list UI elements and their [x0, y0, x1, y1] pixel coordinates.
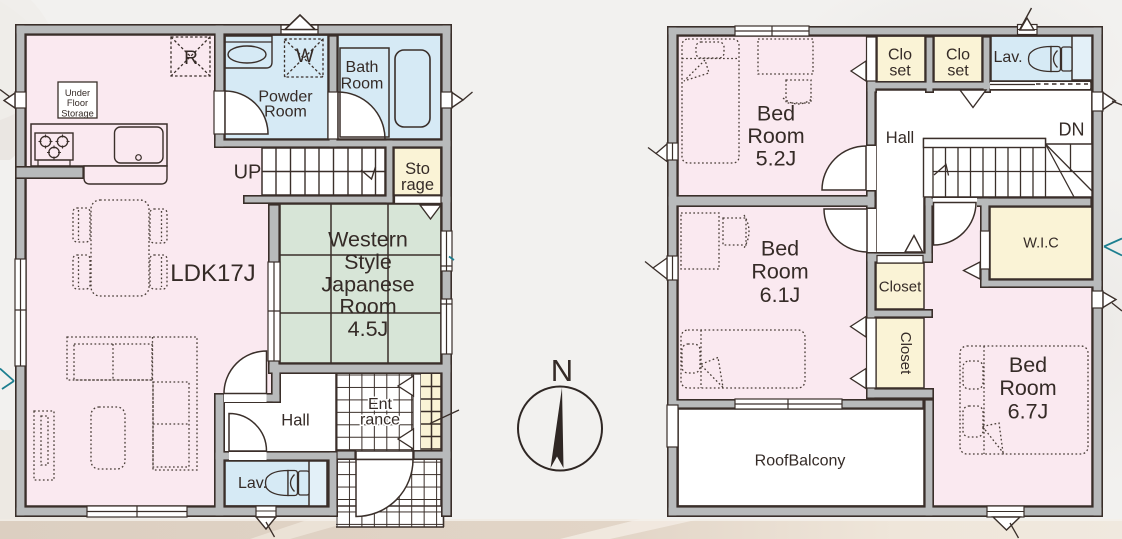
- svg-text:N: N: [551, 353, 573, 388]
- svg-text:Bath: Bath: [346, 59, 379, 76]
- svg-text:Floor: Floor: [67, 98, 88, 108]
- svg-text:LDK17J: LDK17J: [170, 260, 255, 287]
- svg-text:Hall: Hall: [281, 412, 309, 430]
- svg-text:R: R: [184, 48, 198, 69]
- svg-text:RoofBalcony: RoofBalcony: [755, 453, 846, 470]
- svg-text:6.7J: 6.7J: [1008, 399, 1049, 423]
- svg-text:Western: Western: [328, 228, 408, 252]
- svg-text:4.5J: 4.5J: [348, 317, 389, 341]
- svg-text:Closet: Closet: [879, 279, 922, 296]
- svg-text:Ent: Ent: [368, 396, 393, 413]
- svg-text:Hall: Hall: [886, 129, 914, 147]
- svg-text:Bed: Bed: [761, 237, 799, 261]
- svg-text:rance: rance: [360, 412, 400, 429]
- svg-text:Room: Room: [999, 376, 1056, 400]
- svg-text:W.I.C: W.I.C: [1023, 236, 1058, 252]
- svg-text:set: set: [889, 63, 911, 80]
- svg-text:Japanese: Japanese: [321, 272, 414, 296]
- svg-text:Room: Room: [339, 295, 396, 319]
- svg-text:Bed: Bed: [757, 102, 795, 126]
- svg-text:Lav.: Lav.: [993, 49, 1022, 66]
- svg-text:rage: rage: [401, 176, 434, 194]
- svg-text:Closet: Closet: [897, 332, 914, 375]
- svg-text:Clo: Clo: [888, 47, 912, 64]
- svg-text:UP: UP: [234, 162, 262, 184]
- svg-text:Clo: Clo: [946, 47, 970, 64]
- svg-text:W: W: [296, 46, 314, 67]
- svg-text:Room: Room: [747, 124, 804, 148]
- svg-text:Under: Under: [65, 88, 90, 98]
- svg-text:Lav.: Lav.: [238, 475, 267, 492]
- svg-text:Style: Style: [344, 250, 392, 274]
- svg-text:Room: Room: [751, 260, 808, 284]
- svg-text:set: set: [947, 63, 969, 80]
- svg-text:Bed: Bed: [1009, 353, 1047, 377]
- svg-text:6.1J: 6.1J: [760, 283, 801, 307]
- svg-text:5.2J: 5.2J: [756, 146, 797, 170]
- svg-text:Room: Room: [341, 76, 384, 93]
- svg-text:Room: Room: [264, 104, 307, 121]
- svg-text:DN: DN: [1059, 120, 1085, 140]
- svg-text:Storage: Storage: [61, 109, 94, 119]
